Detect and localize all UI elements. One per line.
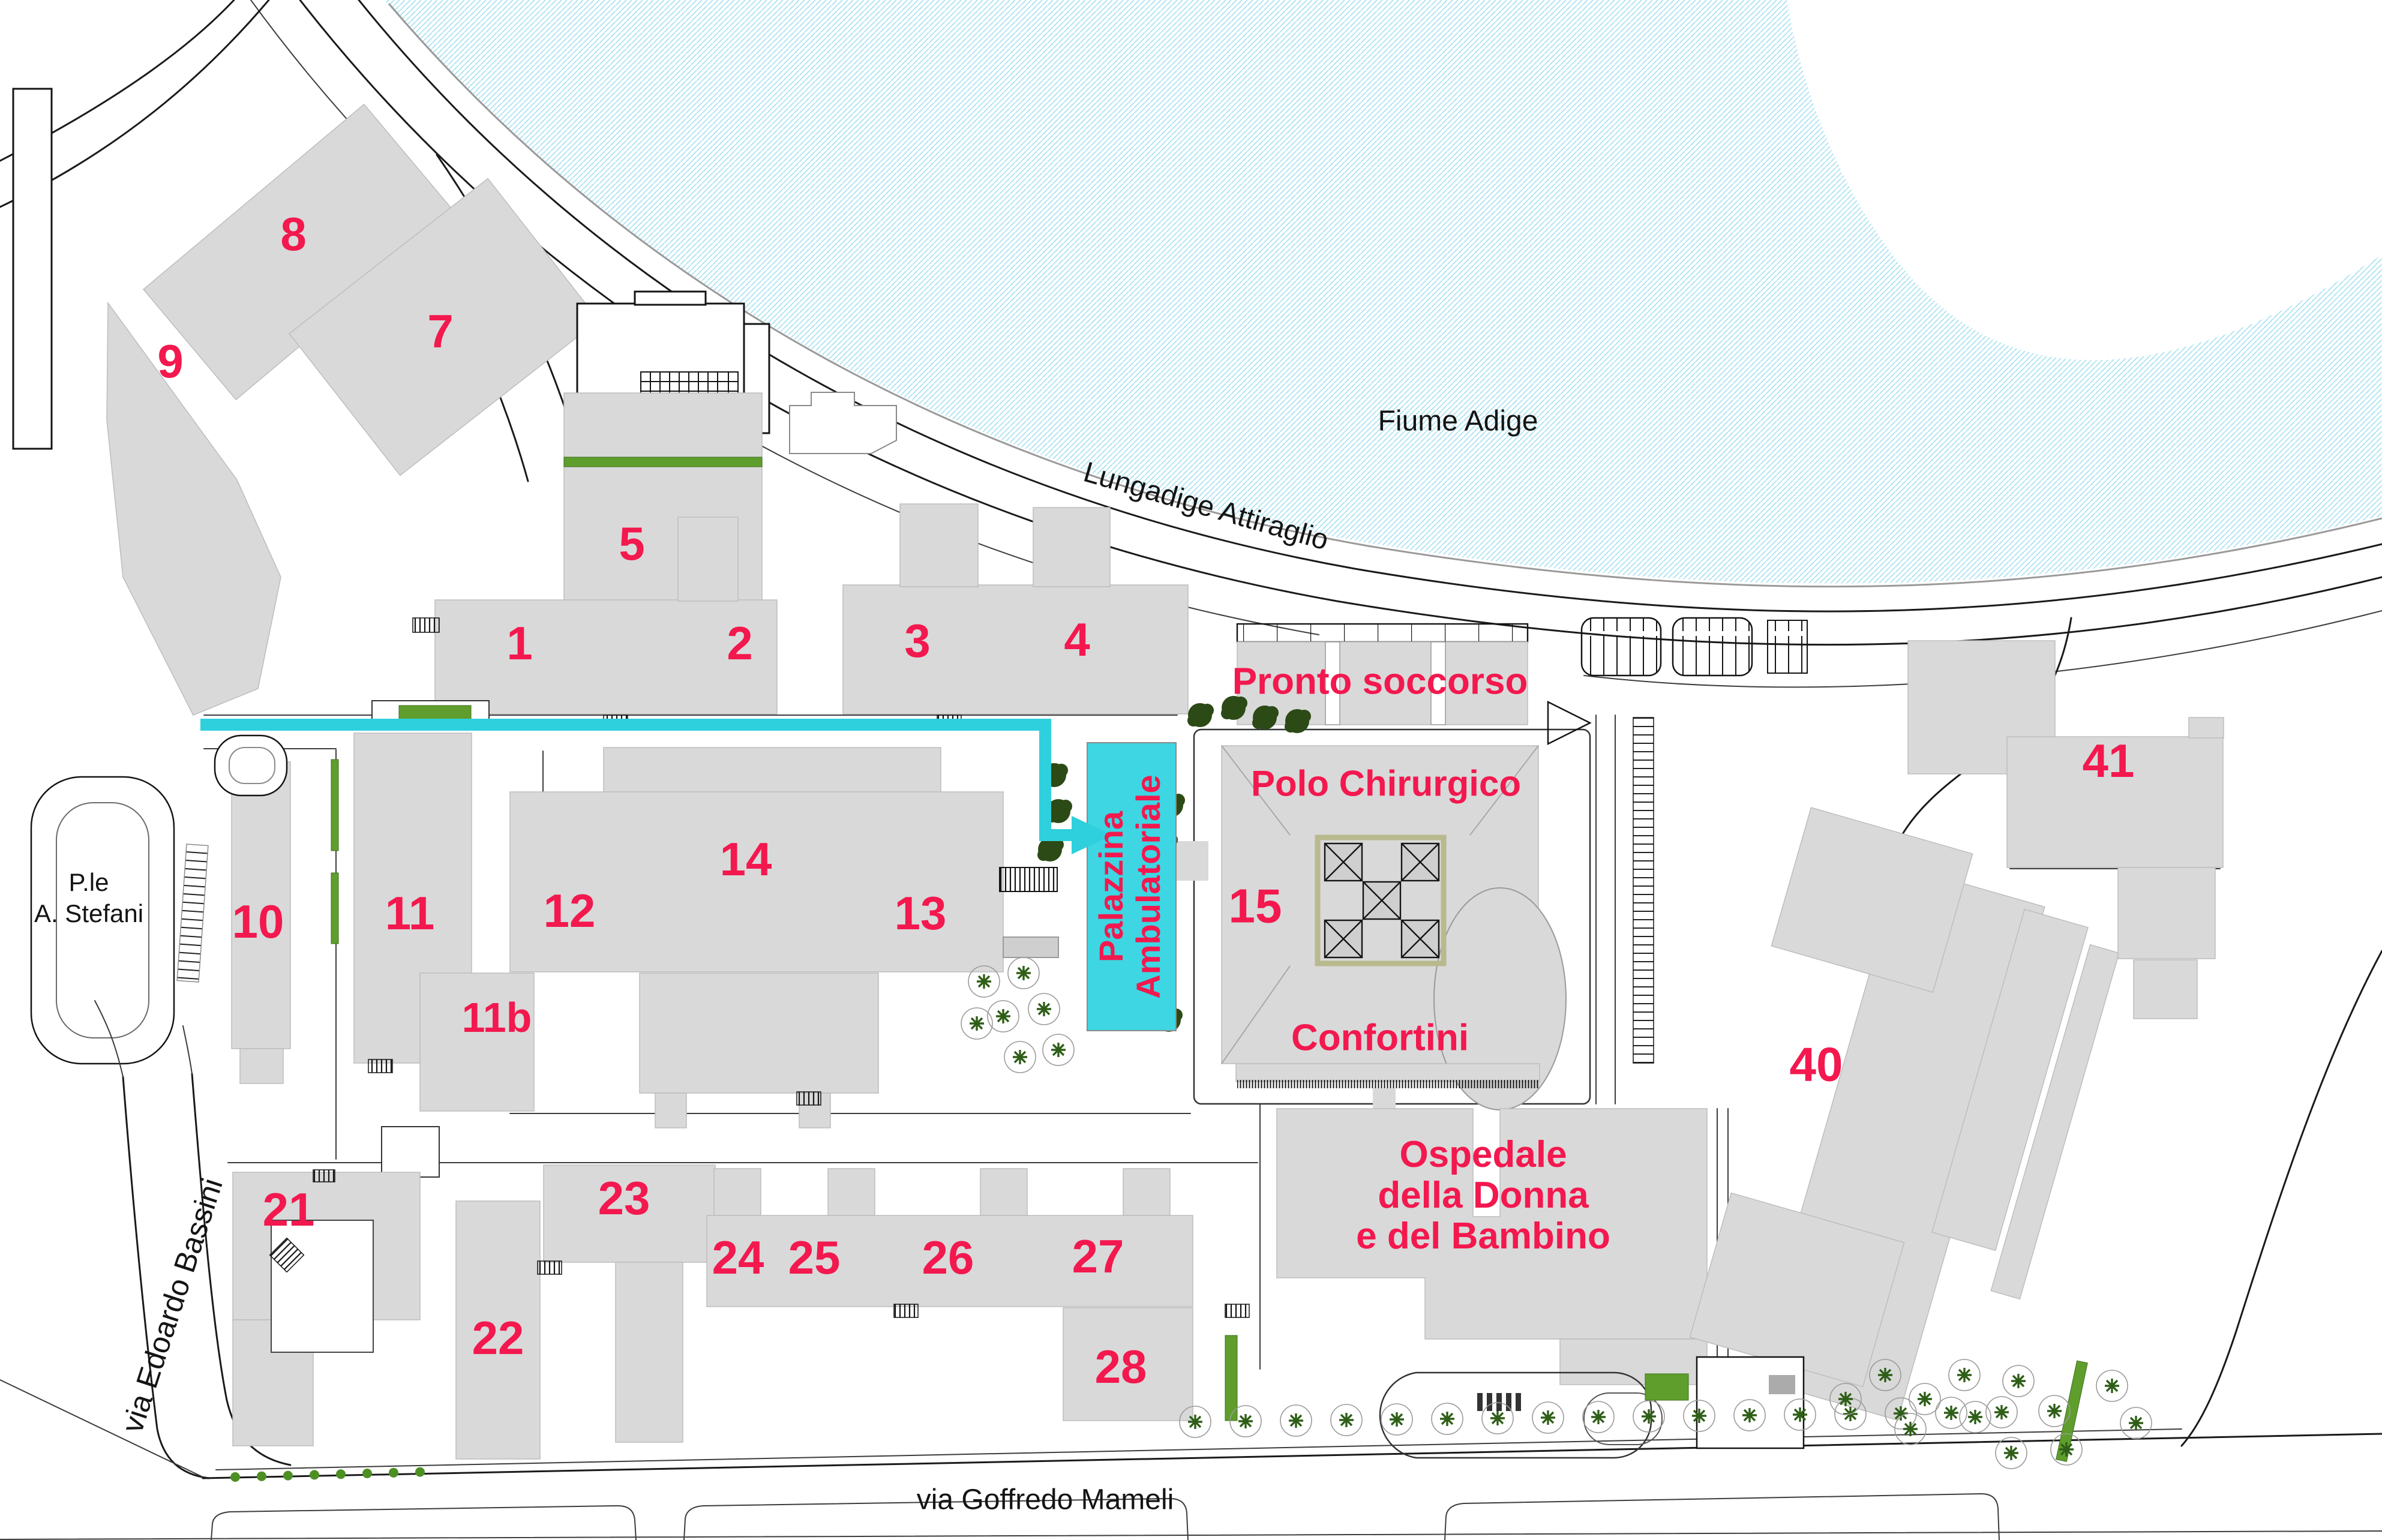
tree-icon	[1230, 1406, 1261, 1437]
shrub-icon	[257, 1472, 266, 1481]
square-label-ple-a-stefani: P.leA. Stefani	[34, 868, 143, 927]
building-number-5: 5	[619, 517, 644, 570]
building-number-4: 4	[1064, 613, 1090, 666]
building-number-11b: 11b	[462, 994, 532, 1041]
building-number-15: 15	[1229, 879, 1282, 933]
narrow-parcel-left-edge	[13, 89, 52, 449]
building-number-13: 13	[895, 887, 947, 939]
building-white-east	[790, 392, 896, 454]
building-number-14: 14	[720, 833, 772, 885]
tree-icon	[1331, 1404, 1362, 1436]
building-40-complex	[1690, 807, 2119, 1420]
dense-tree-icon	[1187, 703, 1214, 727]
canopy-building	[1697, 1357, 1804, 1448]
building-number-28: 28	[1095, 1340, 1147, 1393]
building-number-21: 21	[263, 1183, 315, 1236]
tree-icon	[2003, 1365, 2034, 1397]
tree-icon	[1008, 957, 1039, 989]
parking-stalls-c	[1768, 620, 1807, 673]
tree-icon	[1280, 1405, 1312, 1436]
tree-icon	[1909, 1383, 1940, 1415]
tree-icon	[1043, 1034, 1074, 1065]
building-number-23: 23	[598, 1172, 650, 1224]
building-number-7: 7	[427, 305, 453, 358]
building-number-9: 9	[157, 335, 183, 388]
tree-icon	[1633, 1401, 1664, 1432]
tree-icon	[1180, 1406, 1211, 1437]
tree-icon	[2120, 1407, 2152, 1439]
shrub-icon	[283, 1471, 293, 1481]
building-number-24: 24	[712, 1231, 764, 1284]
building-3-4-slab	[843, 585, 1188, 714]
river-label-fiume-adige: Fiume Adige	[1378, 406, 1538, 437]
shrub-icon	[415, 1467, 425, 1477]
tree-icon	[1960, 1401, 1991, 1433]
building-number-40: 40	[1790, 1038, 1843, 1091]
building-1-2-slab	[435, 600, 777, 714]
building-number-1: 1	[506, 617, 532, 670]
shrub-icon	[230, 1472, 240, 1482]
area-label-confortini: Confortini	[1291, 1017, 1469, 1059]
footbridge-stairs	[1000, 867, 1057, 891]
building-number-22: 22	[472, 1311, 524, 1364]
building-number-26: 26	[922, 1231, 974, 1284]
building-number-3: 3	[904, 614, 930, 667]
shrub-icon	[389, 1468, 398, 1478]
building-number-11: 11	[385, 887, 434, 939]
area-label-polo-chirurgico: Polo Chirurgico	[1251, 764, 1521, 804]
road-arrow-marking	[1548, 702, 1590, 744]
tree-icon	[2096, 1370, 2128, 1401]
roundabout	[215, 736, 287, 795]
road-label-via-goffredo-mameli: via Goffredo Mameli	[917, 1484, 1174, 1516]
building-number-41: 41	[2083, 734, 2135, 787]
hospital-campus-map: Fiume AdigeLungadige Attiragliovia Edoar…	[0, 0, 2382, 1540]
tree-icon	[1532, 1402, 1564, 1433]
parking-stalls-a	[1582, 618, 1661, 676]
area-label-pronto-soccorso: Pronto soccorso	[1232, 661, 1528, 703]
building-number-27: 27	[1072, 1230, 1124, 1283]
tree-icon	[2039, 1395, 2070, 1427]
tree-icon	[1028, 993, 1060, 1025]
building-number-10: 10	[232, 895, 284, 948]
tree-icon	[1986, 1397, 2017, 1428]
tree-icon	[1004, 1041, 1036, 1073]
building-number-25: 25	[788, 1231, 841, 1284]
zebra-crossing	[1477, 1393, 1521, 1411]
tree-icon	[1432, 1403, 1463, 1434]
shrub-icon	[362, 1469, 372, 1478]
parking-island-hatched	[177, 844, 208, 982]
building-number-8: 8	[280, 208, 306, 260]
footbridge	[1003, 937, 1058, 957]
tree-icon	[1583, 1401, 1614, 1433]
tree-icon	[961, 1008, 992, 1039]
tree-icon	[1949, 1359, 1980, 1391]
building-number-12: 12	[544, 884, 596, 937]
parking-stalls-b	[1673, 618, 1752, 676]
shrub-icon	[310, 1470, 319, 1479]
tree-icon	[1381, 1404, 1412, 1435]
shrub-icon	[336, 1469, 346, 1479]
parking-ladder-strip	[1633, 718, 1654, 1063]
building-number-2: 2	[727, 617, 752, 670]
